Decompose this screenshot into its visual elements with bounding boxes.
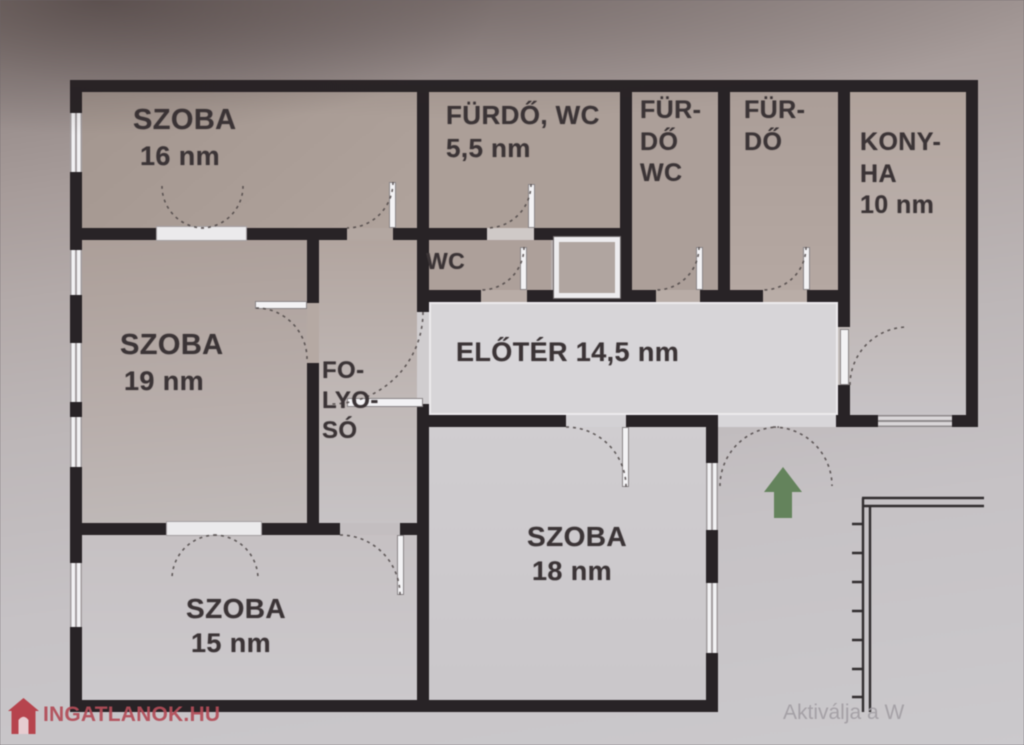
room-area: 18 nm	[532, 554, 627, 588]
ventilation-shaft	[554, 237, 620, 298]
room-name: FÜRDŐ, WC	[446, 99, 600, 132]
room-name: ELŐTÉR 14,5 nm	[456, 335, 679, 369]
door-leaf	[803, 247, 810, 290]
wall-segment	[70, 228, 162, 240]
site-watermark: INGATLANOK.HU	[8, 697, 220, 734]
wall-segment	[258, 523, 340, 535]
doorway	[347, 228, 393, 240]
wall-segment	[429, 290, 481, 302]
room-area: 19 nm	[124, 364, 224, 398]
floor-plan-photo: SZOBA 16 nm FÜRDŐ, WC 5,5 nm FÜR- DŐ WC …	[0, 0, 1024, 745]
wall-segment	[417, 92, 429, 240]
entrance-doorway	[718, 415, 836, 427]
wall-segment	[534, 228, 556, 240]
window	[878, 415, 952, 427]
label-furdo-wc-small: FÜR- DŐ WC	[640, 95, 701, 190]
room-name: DŐ	[640, 127, 701, 159]
room-area: 5,5 nm	[446, 132, 600, 165]
entrance-arrow-icon	[764, 467, 802, 518]
doorway	[763, 290, 807, 302]
wall-segment	[718, 92, 730, 302]
wall-segment	[307, 240, 319, 303]
window	[70, 343, 82, 402]
room-name: FO-	[322, 356, 379, 386]
room-name: WC	[426, 247, 465, 276]
room-name: SZOBA	[133, 102, 237, 139]
doorway	[656, 290, 700, 302]
wall-segment	[700, 290, 763, 302]
door-leaf	[528, 184, 535, 228]
label-konyha: KONY- HA 10 nm	[860, 127, 941, 222]
door-leaf	[520, 247, 527, 290]
door-leaf	[840, 329, 849, 385]
wall-segment	[417, 415, 566, 427]
door-leaf	[622, 427, 629, 487]
wall-segment	[70, 295, 82, 343]
room-name: WC	[640, 158, 701, 190]
doorway	[307, 303, 319, 363]
label-furdo-wc: FÜRDŐ, WC 5,5 nm	[446, 99, 600, 165]
label-szoba-16: SZOBA 16 nm	[133, 102, 237, 173]
wall-segment	[70, 402, 82, 417]
room-name: KONY-	[860, 127, 941, 159]
wall-segment	[838, 92, 850, 327]
doorway	[481, 290, 527, 302]
wall-segment	[632, 290, 656, 302]
wall-segment	[850, 415, 878, 427]
window	[706, 463, 718, 530]
staircase	[852, 498, 984, 712]
os-activation-watermark: Aktiválja a W	[783, 701, 904, 725]
wall-segment	[966, 80, 978, 427]
wall-segment	[706, 653, 718, 712]
room-name: SÓ	[322, 416, 379, 446]
wall-segment	[307, 363, 319, 535]
label-furdo-small: FÜR- DŐ	[744, 95, 805, 158]
room-name: DŐ	[744, 127, 805, 159]
wall-segment	[70, 80, 82, 113]
door-sill	[156, 226, 247, 241]
window	[70, 563, 82, 627]
window	[70, 250, 82, 295]
wall-segment	[838, 385, 850, 427]
room-name: FÜR-	[640, 95, 701, 127]
wall-segment	[70, 467, 82, 563]
room-name: SZOBA	[186, 591, 286, 626]
label-szoba-19: SZOBA 19 nm	[120, 327, 224, 398]
door-sill	[166, 521, 262, 536]
wall-segment	[807, 290, 838, 302]
wall-segment	[70, 523, 172, 535]
label-szoba-18: SZOBA 18 nm	[527, 519, 627, 588]
room-area: 10 nm	[860, 190, 941, 222]
wall-segment	[70, 80, 978, 92]
wall-segment	[952, 415, 978, 427]
wall-segment	[706, 530, 718, 583]
room-name: HA	[860, 159, 941, 191]
doorway	[487, 228, 534, 240]
window	[706, 583, 718, 653]
door-leaf	[696, 247, 703, 290]
site-watermark-text: INGATLANOK.HU	[43, 703, 220, 727]
door-leaf	[389, 182, 396, 228]
doorway	[417, 312, 429, 404]
house-icon	[8, 697, 39, 734]
label-folyoso: FO- LYO- SÓ	[322, 356, 379, 447]
window	[70, 113, 82, 172]
label-wc: WC	[426, 247, 465, 276]
wall-segment	[417, 404, 429, 712]
room-area: 15 nm	[191, 626, 286, 660]
label-szoba-15: SZOBA 15 nm	[186, 591, 286, 660]
door-leaf	[397, 535, 404, 595]
wall-segment	[706, 415, 718, 463]
doorway	[566, 415, 626, 427]
window	[70, 417, 82, 467]
room-name: FÜR-	[744, 95, 805, 127]
wall-segment	[432, 228, 487, 240]
label-eloter: ELŐTÉR 14,5 nm	[456, 335, 679, 369]
room-area: 16 nm	[140, 139, 237, 173]
door-leaf	[255, 301, 307, 309]
room-name: SZOBA	[527, 519, 627, 554]
room-name: LYO-	[322, 386, 379, 416]
doorway	[340, 523, 400, 535]
wall-segment	[243, 228, 347, 240]
wall-segment	[620, 92, 632, 302]
room-name: SZOBA	[120, 327, 224, 364]
